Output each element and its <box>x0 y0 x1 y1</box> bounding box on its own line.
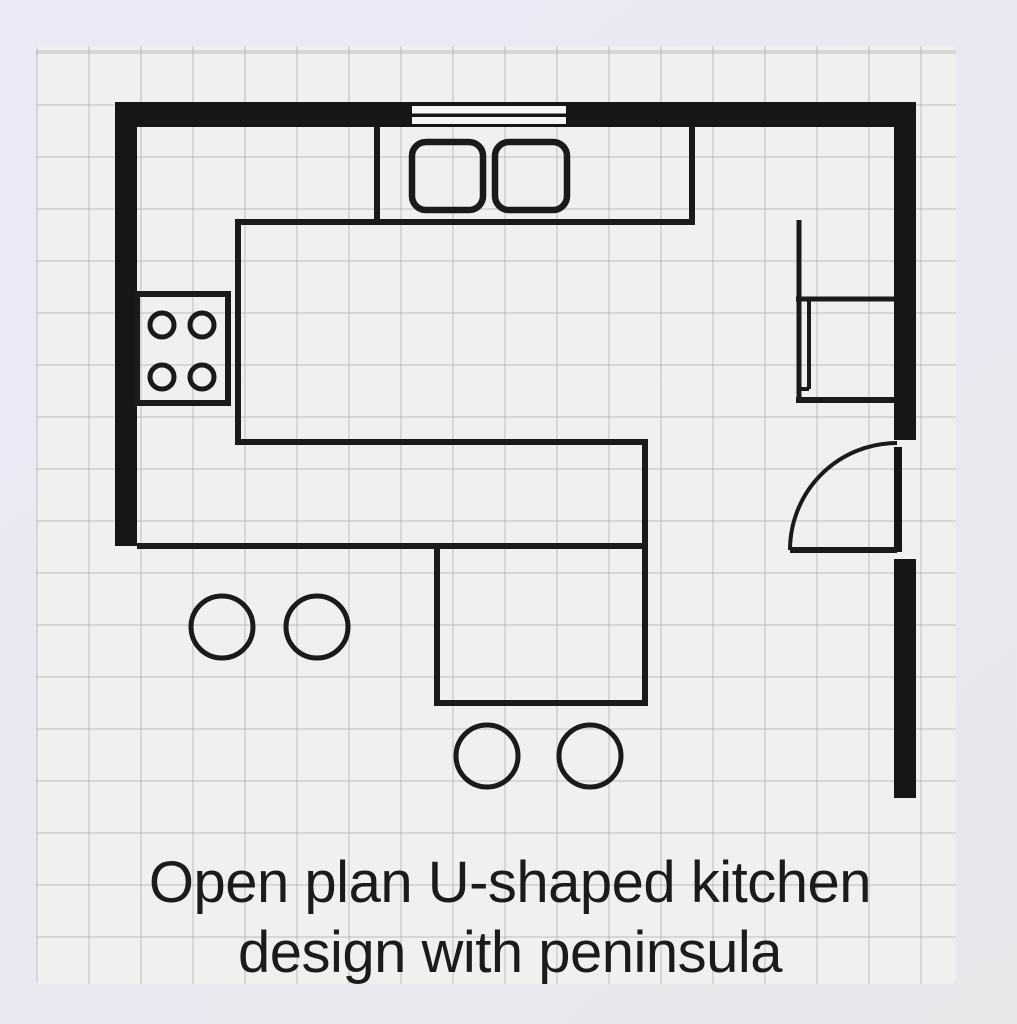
bar-stools <box>191 596 621 787</box>
window-mid-line <box>412 114 566 118</box>
stool-left-2 <box>286 596 348 658</box>
caption-line-2: design with peninsula <box>60 918 960 988</box>
four-burner-cooktop <box>137 294 228 403</box>
sink-basin-right <box>495 142 567 210</box>
caption-line-1: Open plan U-shaped kitchen <box>60 848 960 918</box>
refrigerator-cabinet <box>796 220 894 403</box>
cooktop-outline <box>137 294 228 403</box>
burner-top-right <box>190 313 214 337</box>
u-shaped-counter <box>137 127 695 706</box>
right-wall-upper <box>894 102 916 440</box>
door-swing-arc <box>790 443 897 550</box>
sink-basin-left <box>412 142 483 210</box>
outer-walls <box>115 102 916 798</box>
stool-peninsula-1 <box>456 725 518 787</box>
stool-left-1 <box>191 596 253 658</box>
stool-peninsula-2 <box>559 725 621 787</box>
left-wall <box>115 102 137 546</box>
burner-bottom-right <box>190 365 214 389</box>
burner-top-left <box>150 313 174 337</box>
double-basin-sink <box>412 142 567 210</box>
hinged-door <box>790 443 902 552</box>
burner-bottom-left <box>150 365 174 389</box>
door-frame-line <box>894 447 902 552</box>
right-wall-lower <box>894 559 916 798</box>
window <box>412 106 566 124</box>
caption: Open plan U-shaped kitchen design with p… <box>60 848 960 988</box>
floor-plan-scene: Open plan U-shaped kitchen design with p… <box>0 0 1017 1024</box>
